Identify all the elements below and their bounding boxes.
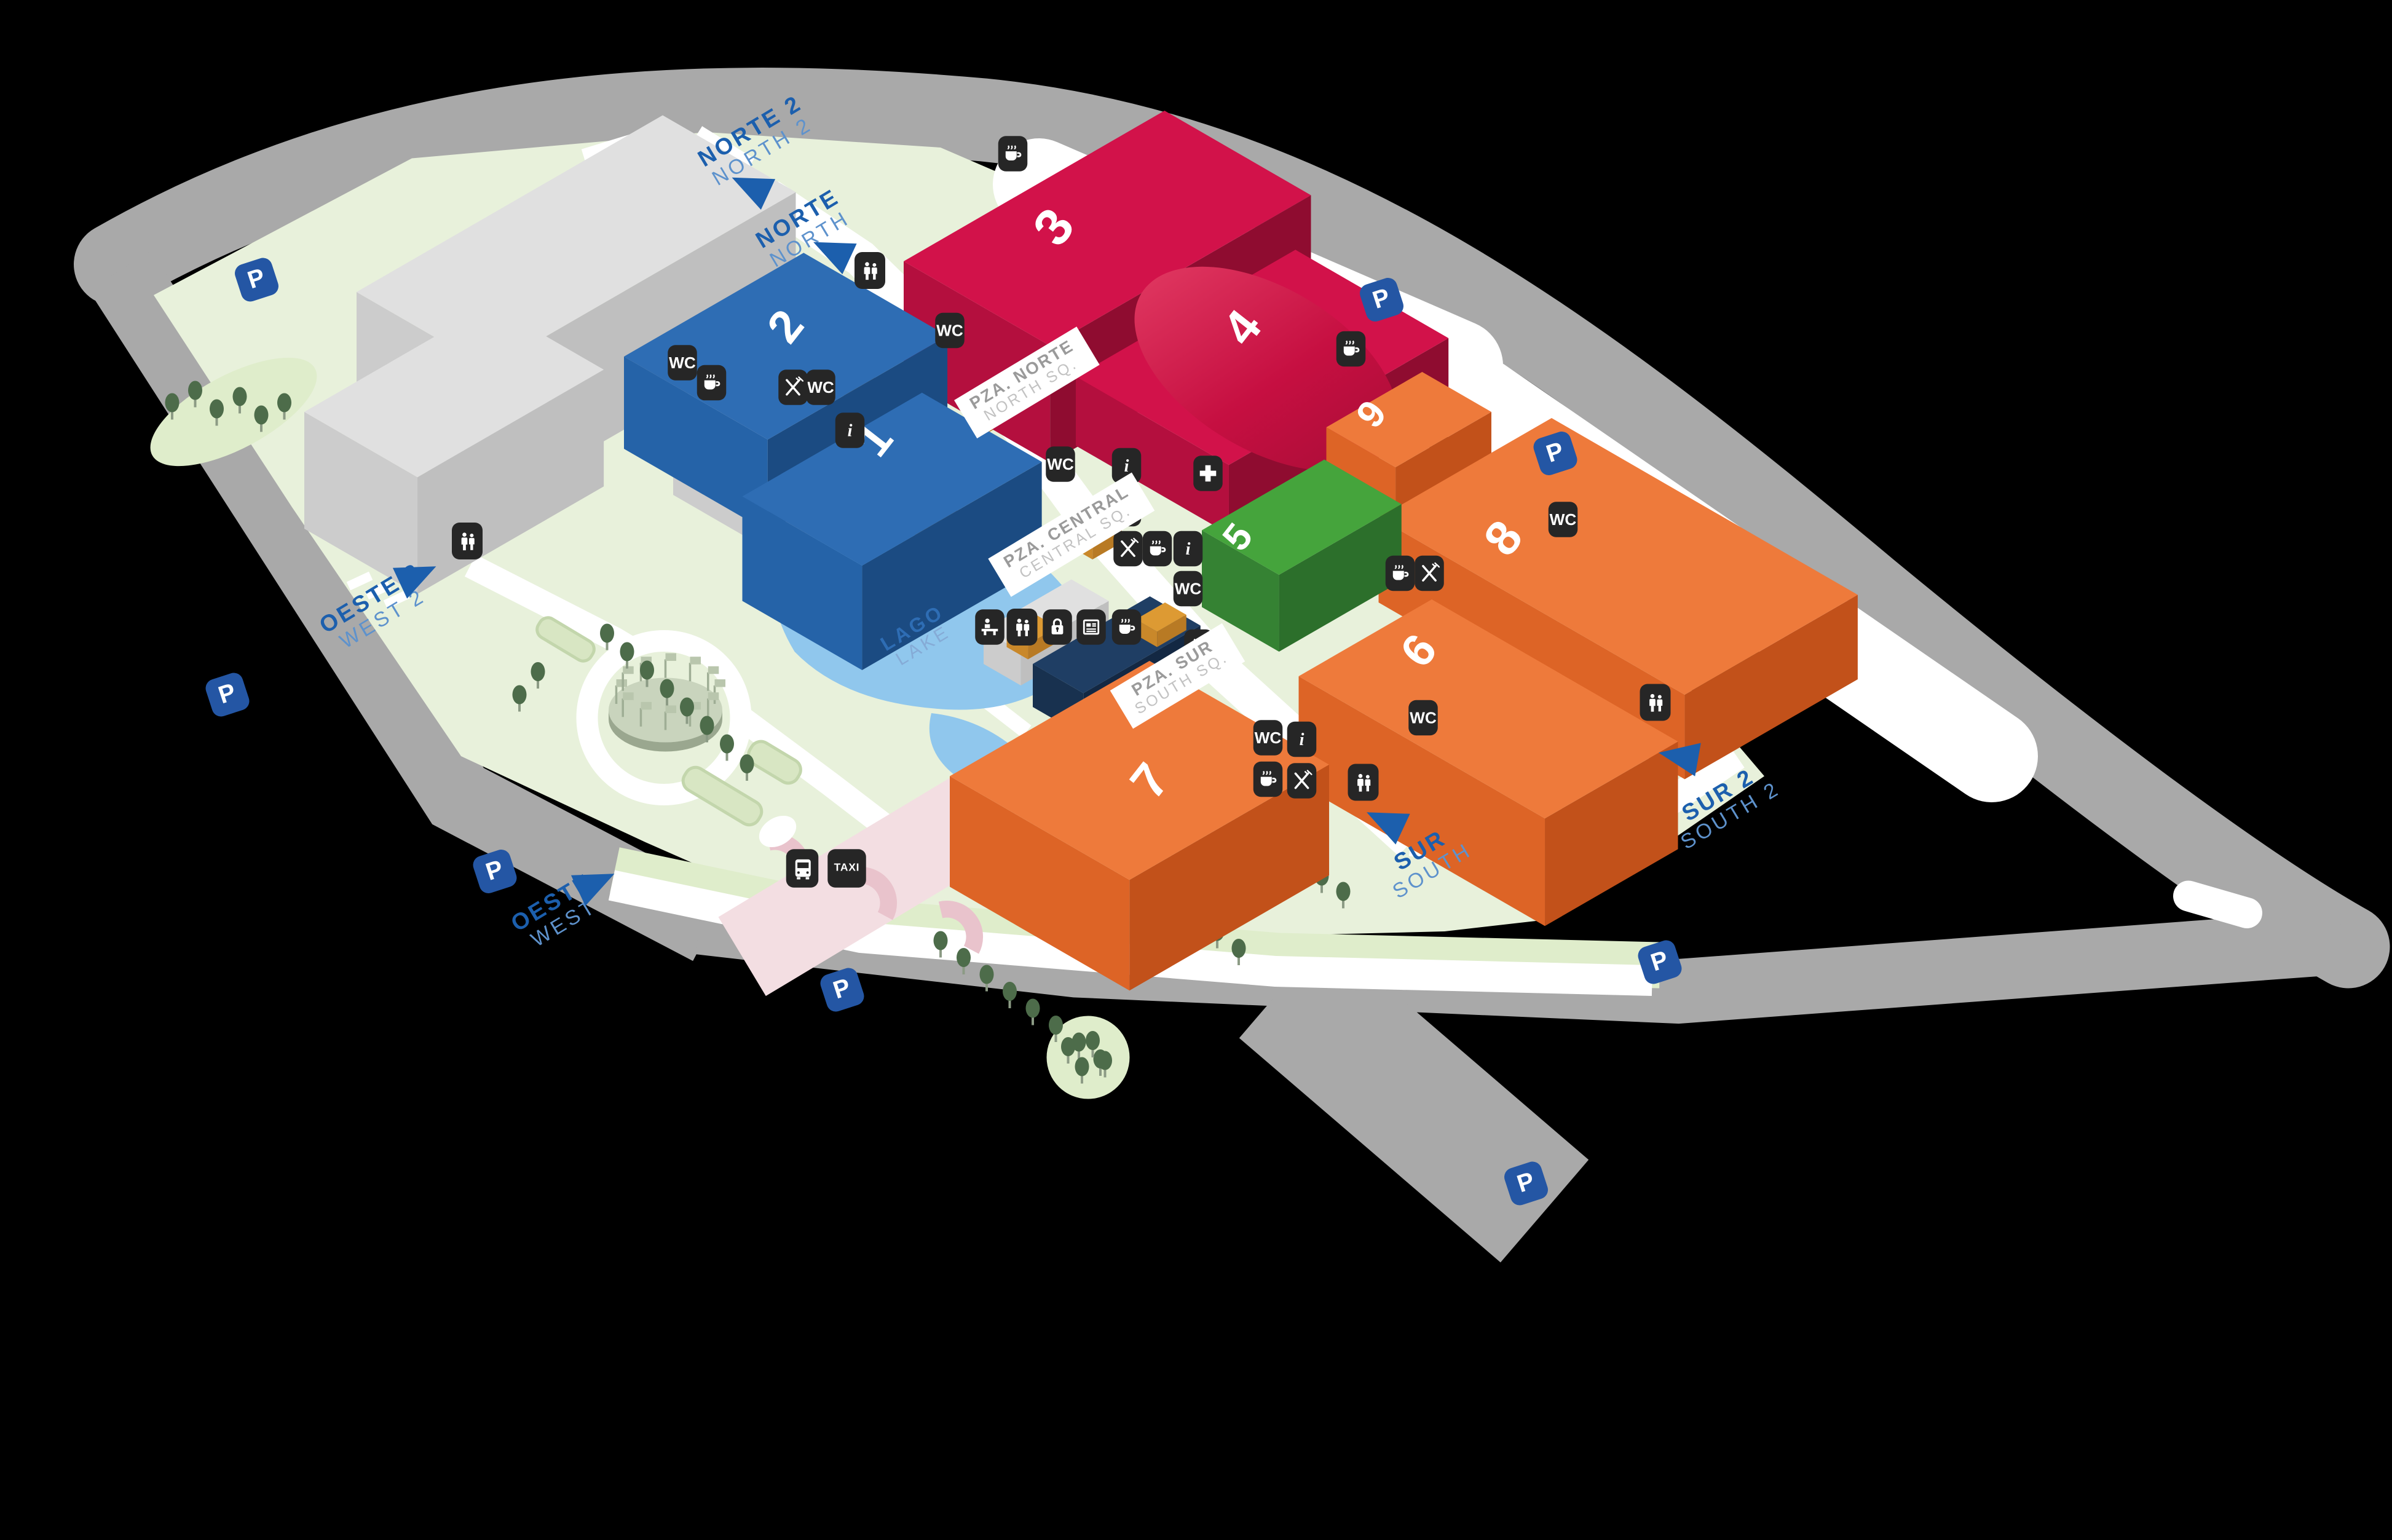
lockers-icon	[1043, 609, 1072, 645]
press-icon	[1076, 609, 1106, 645]
svg-text:i: i	[848, 421, 853, 440]
parking-label: P	[1514, 1167, 1538, 1199]
cafe-icon	[1253, 762, 1283, 797]
wc-label: WC	[669, 353, 696, 372]
restaurant-icon	[1113, 531, 1143, 567]
wc-label: WC	[1550, 510, 1577, 529]
cafe-icon	[1112, 609, 1142, 645]
parking-label: P	[1648, 946, 1672, 977]
pedestrians-icon	[1640, 684, 1671, 721]
pedestrians-icon	[1007, 609, 1038, 646]
svg-text:i: i	[1300, 730, 1305, 749]
pedestrians-icon	[855, 252, 885, 289]
pedestrians-icon	[1348, 764, 1379, 801]
parking-label: P	[1370, 284, 1394, 315]
svg-text:i: i	[1124, 457, 1129, 476]
info-icon: i	[1287, 722, 1317, 757]
wc-icon: WC	[1549, 502, 1578, 537]
wc-label: WC	[1410, 709, 1437, 727]
wc-label: WC	[1175, 580, 1202, 598]
wc-label: WC	[1255, 729, 1282, 747]
taxi-label: TAXI	[834, 863, 860, 874]
first-aid-icon	[1193, 456, 1223, 491]
restaurant-icon	[1415, 556, 1444, 591]
cafe-icon	[1336, 331, 1366, 367]
wc-icon: WC	[1408, 700, 1438, 736]
info-icon: i	[1174, 531, 1203, 567]
wc-icon: WC	[668, 345, 697, 381]
info-icon: i	[835, 413, 865, 448]
wc-icon: WC	[1253, 720, 1283, 756]
restaurant-icon	[778, 369, 808, 405]
bus-icon	[786, 849, 819, 888]
taxi-icon: TAXI	[827, 849, 866, 888]
restaurant-icon	[1287, 763, 1317, 799]
parking-label: P	[245, 264, 269, 295]
cafe-icon	[998, 136, 1028, 172]
wc-label: WC	[1047, 455, 1074, 473]
wc-label: WC	[936, 322, 963, 340]
wc-icon: WC	[1174, 571, 1203, 607]
roundabout	[587, 641, 741, 795]
wc-label: WC	[807, 378, 834, 397]
reception-icon	[975, 609, 1005, 645]
parking-label: P	[483, 856, 507, 887]
cafe-icon	[697, 365, 727, 401]
cafe-icon	[1143, 531, 1172, 567]
entrance-arrow-sur-2	[1656, 736, 1701, 776]
parking-label: P	[830, 974, 854, 1005]
pedestrians-icon	[452, 523, 483, 559]
map-viewport: 324918567 WCWCWCWCWCWCWCWCWCiiiiTAXIPPPP…	[0, 0, 2392, 1540]
parking-label: P	[215, 679, 239, 710]
wc-icon: WC	[935, 313, 965, 349]
wc-icon: WC	[1046, 446, 1075, 482]
cafe-icon	[1386, 556, 1415, 591]
wc-icon: WC	[806, 369, 835, 405]
svg-text:i: i	[1186, 540, 1191, 559]
exhibition-campus-map: 324918567 WCWCWCWCWCWCWCWCWCiiiiTAXIPPPP…	[0, 0, 2392, 1540]
parking-label: P	[1543, 438, 1567, 469]
